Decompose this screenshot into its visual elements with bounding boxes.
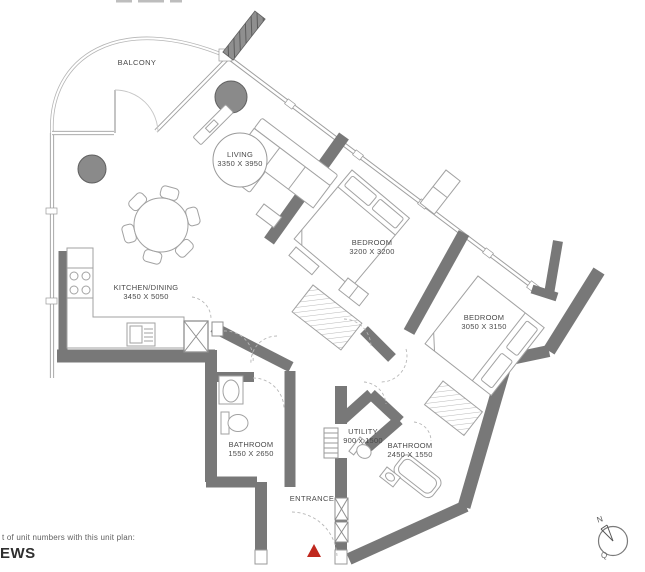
bedroom-2-label: BEDROOM 3050 X 3150 — [461, 313, 506, 331]
stove — [67, 268, 93, 298]
floor-plan-page: BALCONY LIVING 3350 X 3950 KITCHEN/DININ… — [0, 0, 645, 572]
hatched-wall-fin — [223, 11, 265, 60]
balcony-label: BALCONY — [118, 58, 157, 67]
nightstand — [339, 278, 369, 306]
toilet-1 — [228, 415, 248, 432]
dining-set — [121, 185, 201, 265]
bathroom-2-label: BATHROOM 2450 X 1550 — [387, 441, 432, 459]
balcony-table — [78, 155, 106, 183]
entrance-marker — [307, 544, 321, 557]
footer-note: t of unit numbers with this unit plan: — [2, 533, 135, 542]
floor-plan-drawing — [0, 0, 645, 572]
bedroom-1-label: BEDROOM 3200 X 3200 — [349, 238, 394, 256]
footer-brand-cropped: EWS — [0, 545, 36, 562]
utility-louver-door — [324, 428, 338, 458]
dresser — [420, 170, 460, 214]
entry-cabinets — [335, 498, 348, 542]
wardrobe-bedroom-2 — [425, 381, 483, 435]
services-shaft — [184, 321, 223, 352]
entrance-jamb-right — [335, 550, 347, 564]
living-round-table — [215, 81, 247, 113]
entrance-jamb-left — [255, 550, 267, 564]
balcony-door — [115, 90, 158, 133]
bed-2 — [425, 276, 544, 395]
kitchen-dining-label: KITCHEN/DINING 3450 X 5050 — [114, 283, 179, 301]
bathroom-1-fixtures — [219, 376, 248, 434]
compass-tail-mark: Q — [601, 551, 607, 560]
living-label: LIVING 3350 X 3950 — [217, 150, 262, 168]
utility-label: UTILITY 900 x 1500 — [343, 427, 383, 445]
entrance-label: ENTRANCE — [290, 494, 334, 503]
cropped-top-text-remnant — [116, 0, 182, 3]
bathroom-1-label: BATHROOM 1550 X 2650 — [228, 440, 273, 458]
